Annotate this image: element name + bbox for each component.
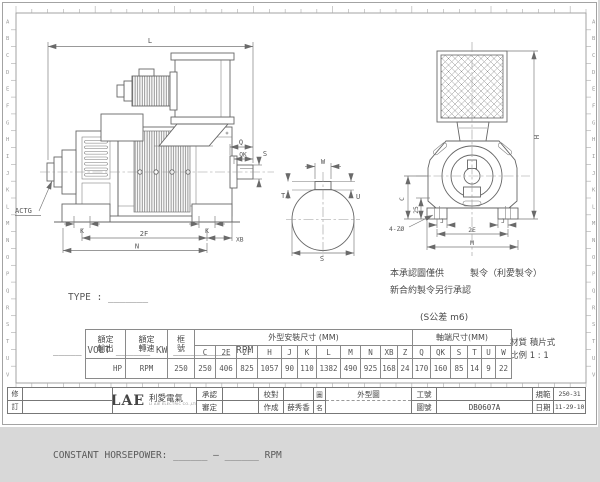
- dim-label-S: S: [320, 255, 324, 263]
- shaft-end-view: W T U S: [281, 158, 360, 263]
- proof-label-col: 校對 作成: [259, 388, 284, 413]
- row-letter-left: Q: [6, 289, 9, 295]
- dim-value-H: 1057: [258, 359, 282, 379]
- row-letter-left: H: [6, 137, 9, 143]
- dim-value-J: 90: [282, 359, 298, 379]
- rated-speed-value: RPM: [126, 359, 168, 379]
- side-view: L Q QK S K K 2F XB N ACTG: [15, 37, 274, 253]
- blower-motor: [132, 76, 170, 106]
- dim-label-T: T: [281, 192, 286, 200]
- row-letter-left: G: [6, 120, 9, 126]
- row-letter-right: R: [592, 305, 596, 311]
- dim-label-2E: 2E: [468, 227, 476, 234]
- dim-label-L: L: [148, 37, 152, 45]
- dim-value-Z: 24: [398, 359, 413, 379]
- spec-date-label-col: 規範 日期: [533, 388, 554, 413]
- row-letter-left: M: [6, 221, 10, 227]
- row-letter-right: O: [592, 255, 595, 261]
- dim-value-U: 9: [482, 359, 496, 379]
- row-letter-right: C: [592, 53, 595, 59]
- author-label: 作成: [259, 400, 283, 413]
- drawing-name-col: 外型圖: [326, 388, 412, 413]
- row-letter-right: I: [592, 154, 595, 160]
- row-letter-right: N: [592, 238, 595, 244]
- drawing-sheet: AABBCCDDEEFFGGHHIIJJKKLLMMNNOOPPQQRRSSTT…: [0, 0, 598, 427]
- dim-label-J-left: J: [440, 218, 444, 225]
- row-letter-right: G: [592, 120, 595, 126]
- dim-value-N: 925: [361, 359, 381, 379]
- vent-louvers: [85, 141, 108, 177]
- row-letter-right: B: [592, 36, 596, 42]
- row-letter-left: U: [6, 356, 9, 362]
- frame-no-value: 250: [168, 359, 195, 379]
- row-letter-right: T: [592, 339, 596, 345]
- dim-label-W: W: [321, 158, 326, 166]
- row-letter-right: S: [592, 322, 595, 328]
- dim-column-U: U: [482, 346, 496, 359]
- row-letter-right: Q: [592, 289, 595, 295]
- row-letter-left: K: [6, 188, 10, 194]
- drawing-name-blank: [326, 400, 411, 413]
- dim-column-M: M: [341, 346, 361, 359]
- frame-no-header: 框號: [168, 330, 195, 359]
- dim-value-2E: 406: [216, 359, 237, 379]
- drawing-no-label: 圖號: [412, 400, 436, 413]
- dim-label-U: U: [356, 193, 360, 201]
- row-letter-right: U: [592, 356, 595, 362]
- shaft-dims-header: 軸端尺寸(MM): [413, 330, 512, 346]
- mounting-dims-header: 外型安裝尺寸 (MM): [195, 330, 413, 346]
- dim-label-S-shaft: S: [263, 150, 267, 158]
- approve-value: [223, 388, 258, 400]
- dim-column-2E: 2E: [216, 346, 237, 359]
- row-letter-right: J: [592, 171, 595, 177]
- row-letter-left: N: [6, 238, 9, 244]
- engineering-drawing-page: { "frame": { "row_letters": ["A","B","C"…: [0, 0, 600, 430]
- tolerance-note: (S公差 m6): [420, 310, 468, 323]
- dim-value-C: 250: [195, 359, 216, 379]
- row-letter-left: P: [6, 272, 10, 278]
- dim-label-N: N: [135, 243, 139, 251]
- row-letter-left: L: [6, 204, 10, 210]
- spec-date-value-col: 250-31 11-29-10: [554, 388, 585, 413]
- drawing-name: 外型圖: [326, 388, 411, 400]
- approval-note-row: 本承認圖僅供 製令（利愛製令）: [390, 266, 542, 279]
- revision-label-col: 修 訂: [8, 388, 23, 413]
- dim-column-Z: Z: [398, 346, 413, 359]
- approve-label-col: 承認 審定: [197, 388, 223, 413]
- approve-label: 承認: [197, 388, 222, 400]
- constant-horsepower-line: CONSTANT HORSEPOWER: ______ — ______ RPM: [53, 447, 282, 465]
- rated-speed-header: 額定轉速: [126, 330, 168, 359]
- row-letter-right: P: [592, 272, 596, 278]
- dim-value-T: 14: [468, 359, 482, 379]
- date-label: 日期: [533, 400, 553, 413]
- rated-output-value: HP: [86, 359, 126, 379]
- dim-column-H: H: [258, 346, 282, 359]
- rev-top-label: 修: [8, 388, 22, 400]
- drawing-name-label-col: 圖 名: [314, 388, 326, 413]
- row-letter-right: H: [592, 137, 595, 143]
- material-scale-note: 材質 積片式 比例 1 : 1: [510, 337, 555, 362]
- dim-column-W: W: [496, 346, 512, 359]
- dim-label-2F: 2F: [140, 230, 148, 238]
- row-letter-left: F: [6, 104, 9, 110]
- date-value: 11-29-10: [554, 400, 585, 413]
- row-letter-left: J: [6, 171, 9, 177]
- approval-note-left: 本承認圖僅供: [390, 266, 444, 279]
- spec-value: 250-31: [554, 388, 585, 400]
- dim-value-XB: 168: [381, 359, 398, 379]
- proof-value: [284, 388, 313, 400]
- company-name-en: LI AIE ELECTRIC CO.,LTD: [149, 403, 196, 407]
- end-view: H C 25 4-ZØ J J 2E M: [389, 42, 541, 256]
- row-letter-right: K: [592, 188, 596, 194]
- proof-value-col: 薛秀香: [284, 388, 314, 413]
- company-logo: LAE: [113, 393, 145, 409]
- dim-label-25: 25: [413, 206, 420, 214]
- actg-label: ACTG: [15, 207, 32, 215]
- rev-bottom-label: 訂: [8, 400, 22, 413]
- row-letter-left: S: [6, 322, 9, 328]
- row-letter-right: M: [592, 221, 596, 227]
- row-letter-left: T: [6, 339, 10, 345]
- number-value-col: DB0607A: [437, 388, 533, 413]
- dim-column-J: J: [282, 346, 298, 359]
- review-value: [223, 400, 258, 413]
- name-label-top: 圖: [314, 388, 325, 400]
- row-letter-right: F: [592, 104, 595, 110]
- rev-entry-1: [23, 388, 112, 400]
- approval-note-line2: 新合約製令另行承認: [390, 283, 471, 296]
- dim-value-S: 85: [451, 359, 468, 379]
- row-letter-left: V: [6, 373, 10, 379]
- rev-entry-2: [23, 400, 112, 413]
- approve-value-col: [223, 388, 259, 413]
- blower-duct: [175, 60, 230, 117]
- type-line: TYPE : _______: [53, 289, 282, 307]
- motor-foot-left: [62, 204, 110, 222]
- number-label-col: 工號 圖號: [412, 388, 437, 413]
- rated-output-header: 額定輸出: [86, 330, 126, 359]
- dim-column-N: N: [361, 346, 381, 359]
- drawing-no-value: DB0607A: [437, 400, 532, 413]
- dim-value-QK: 160: [431, 359, 451, 379]
- author-name: 薛秀香: [284, 400, 313, 413]
- dim-column-Q: Q: [413, 346, 431, 359]
- motor-foot-right: [192, 204, 232, 222]
- dim-value-K: 110: [298, 359, 317, 379]
- work-no-label: 工號: [412, 388, 436, 400]
- dim-value-Q: 170: [413, 359, 431, 379]
- dim-column-XB: XB: [381, 346, 398, 359]
- row-letter-right: V: [592, 373, 596, 379]
- proof-label: 校對: [259, 388, 283, 400]
- row-letter-left: C: [6, 53, 9, 59]
- dim-value-W: 22: [496, 359, 512, 379]
- name-label-bottom: 名: [314, 400, 325, 413]
- row-letter-left: O: [6, 255, 9, 261]
- dim-label-XB: XB: [236, 237, 244, 244]
- row-letter-left: B: [6, 36, 10, 42]
- dim-column-C: C: [195, 346, 216, 359]
- row-letter-right: D: [592, 70, 595, 76]
- dim-value-L: 1382: [317, 359, 341, 379]
- terminal-box: [101, 114, 143, 141]
- dim-label-QK: QK: [239, 152, 247, 159]
- dim-label-C: C: [399, 197, 406, 201]
- dim-column-QK: QK: [431, 346, 451, 359]
- dim-value-2F: 825: [237, 359, 258, 379]
- dim-label-Q: Q: [239, 139, 243, 147]
- material-note: 材質 積片式: [510, 337, 555, 350]
- scale-note: 比例 1 : 1: [510, 350, 555, 363]
- spec-label: 規範: [533, 388, 553, 400]
- dim-column-L: L: [317, 346, 341, 359]
- row-letter-left: E: [6, 87, 9, 93]
- holes-callout: 4-ZØ: [389, 225, 404, 233]
- approval-note-right: 製令（利愛製令）: [470, 266, 542, 279]
- row-letter-right: E: [592, 87, 595, 93]
- dim-column-S: S: [451, 346, 468, 359]
- revision-entry-col: [23, 388, 113, 413]
- dim-column-2F: 2F: [237, 346, 258, 359]
- work-no-value: [437, 388, 532, 400]
- row-letter-left: D: [6, 70, 9, 76]
- review-label: 審定: [197, 400, 222, 413]
- dim-column-T: T: [468, 346, 482, 359]
- title-block: 修 訂 LAE 利愛電氣 LI AIE ELECTRIC CO.,LTD 承認 …: [7, 387, 586, 414]
- dim-label-J-right: J: [501, 218, 505, 225]
- logo-col: LAE 利愛電氣 LI AIE ELECTRIC CO.,LTD: [113, 388, 197, 413]
- dim-column-K: K: [298, 346, 317, 359]
- dim-value-M: 490: [341, 359, 361, 379]
- dim-label-H: H: [533, 135, 541, 139]
- row-letter-left: I: [6, 154, 9, 160]
- row-letter-right: A: [592, 19, 596, 25]
- row-letter-left: A: [6, 19, 10, 25]
- dimension-table-wrap: 額定輸出額定轉速框號外型安裝尺寸 (MM)軸端尺寸(MM)C2E2FHJKLMN…: [85, 329, 512, 379]
- row-letter-right: L: [592, 204, 596, 210]
- dimension-table: 額定輸出額定轉速框號外型安裝尺寸 (MM)軸端尺寸(MM)C2E2FHJKLMN…: [85, 329, 512, 379]
- dim-label-M: M: [470, 240, 474, 247]
- row-letter-left: R: [6, 305, 10, 311]
